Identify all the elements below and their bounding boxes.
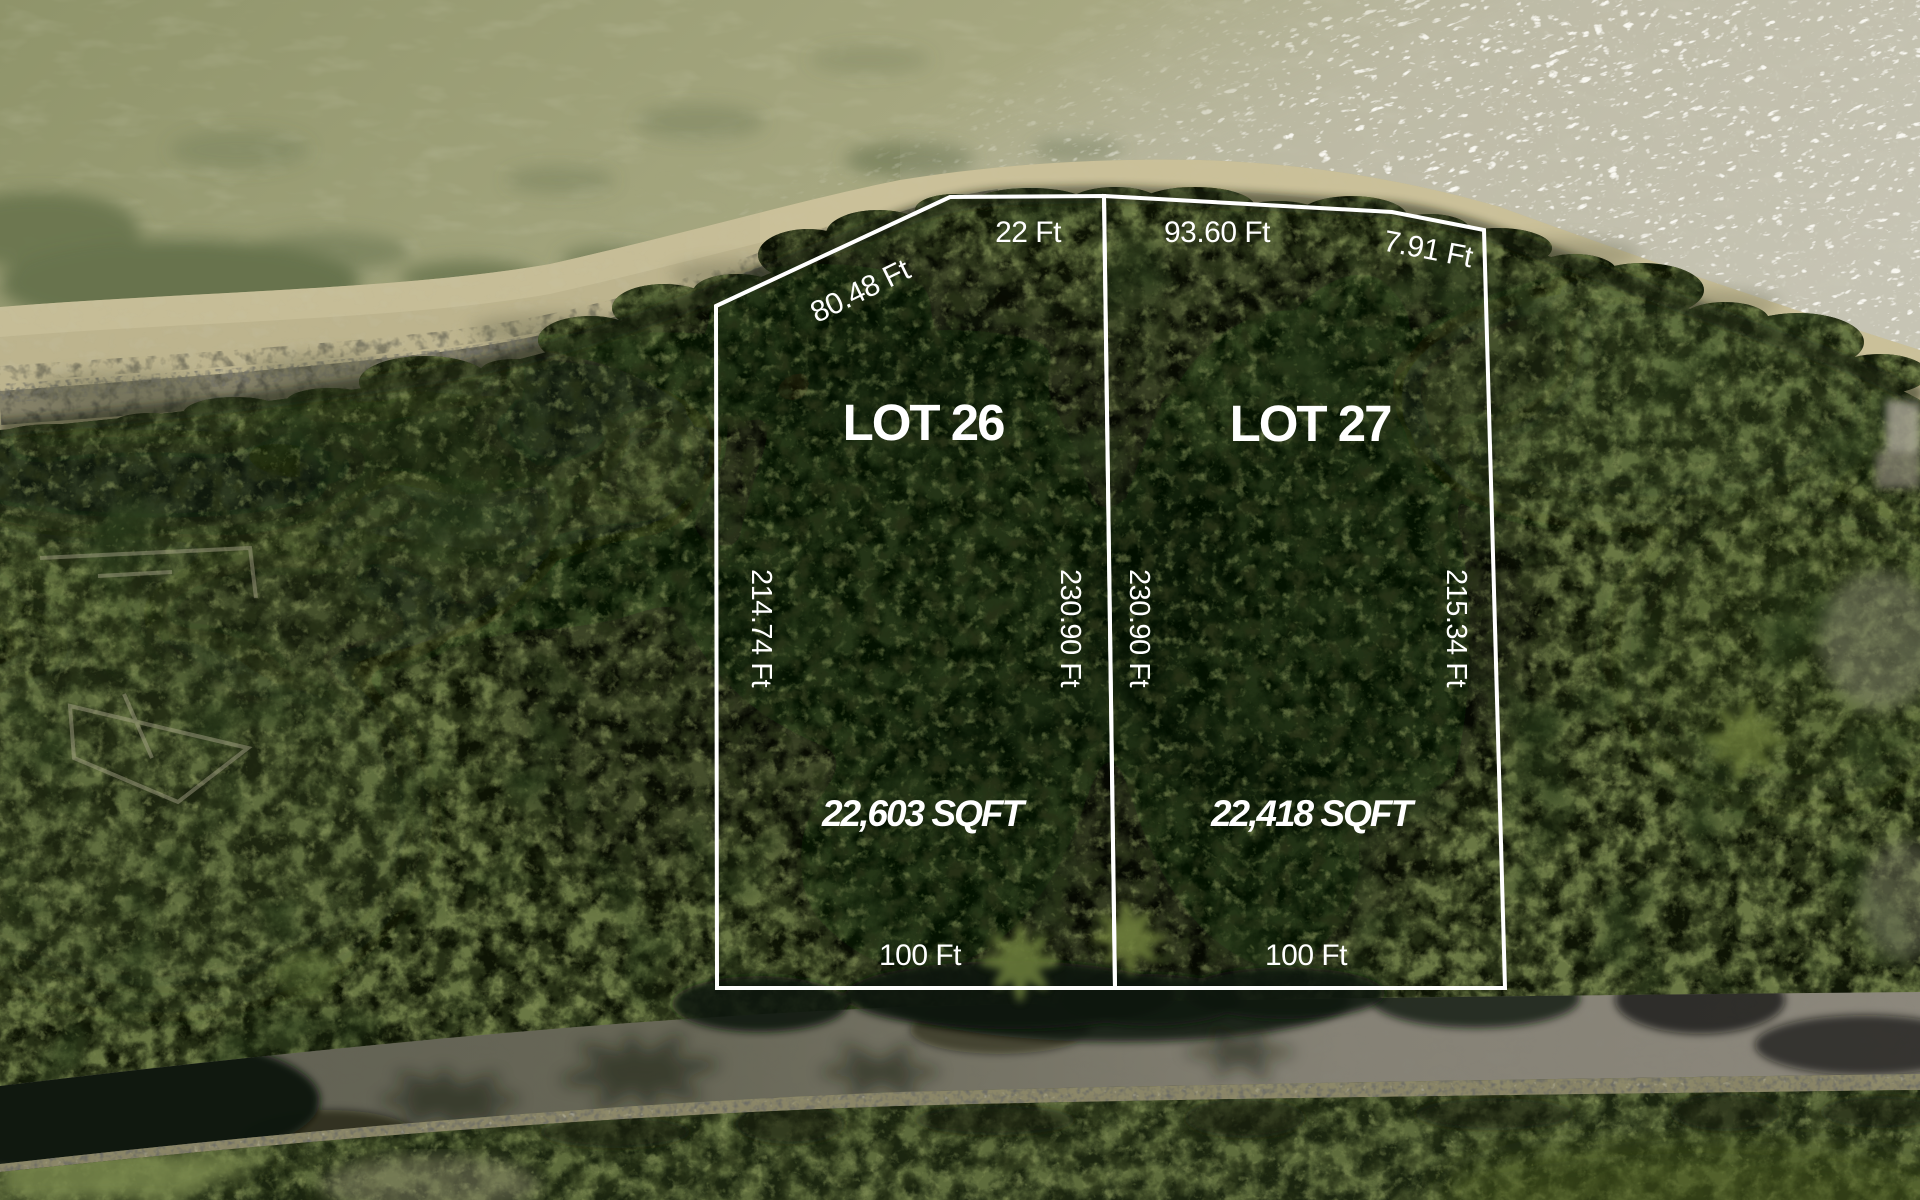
- svg-text:100 Ft: 100 Ft: [1265, 939, 1348, 972]
- svg-text:230.90 Ft: 230.90 Ft: [1054, 569, 1086, 687]
- svg-text:LOT 27: LOT 27: [1230, 395, 1392, 452]
- svg-text:LOT 26: LOT 26: [843, 394, 1005, 451]
- svg-text:214.74 Ft: 214.74 Ft: [745, 569, 777, 687]
- svg-text:100 Ft: 100 Ft: [879, 939, 962, 972]
- svg-text:215.34 Ft: 215.34 Ft: [1440, 569, 1472, 687]
- svg-text:22 Ft: 22 Ft: [995, 216, 1062, 249]
- svg-text:230.90 Ft: 230.90 Ft: [1123, 569, 1155, 687]
- svg-text:22,418 SQFT: 22,418 SQFT: [1210, 793, 1417, 834]
- svg-text:22,603 SQFT: 22,603 SQFT: [821, 793, 1028, 834]
- svg-text:93.60 Ft: 93.60 Ft: [1164, 216, 1271, 249]
